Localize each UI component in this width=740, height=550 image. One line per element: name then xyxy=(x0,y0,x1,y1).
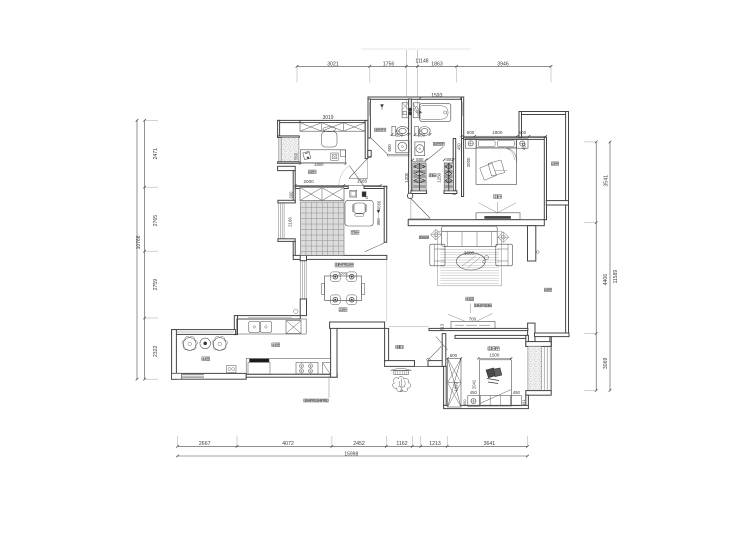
svg-text:450: 450 xyxy=(462,399,467,406)
svg-text:10766: 10766 xyxy=(136,235,142,249)
svg-text:1756: 1756 xyxy=(383,62,395,68)
svg-text:1600: 1600 xyxy=(314,162,324,167)
svg-text:2000: 2000 xyxy=(466,157,471,167)
svg-text:300: 300 xyxy=(376,218,381,226)
svg-text:450: 450 xyxy=(470,390,478,395)
svg-text:1162: 1162 xyxy=(396,441,407,447)
svg-text:550: 550 xyxy=(396,132,404,137)
svg-text:3019: 3019 xyxy=(322,115,333,121)
svg-text:1593: 1593 xyxy=(431,93,442,99)
svg-text:500: 500 xyxy=(418,132,426,137)
svg-text:2166: 2166 xyxy=(288,217,293,227)
svg-text:450: 450 xyxy=(513,390,521,395)
svg-text:4072: 4072 xyxy=(282,441,294,447)
svg-text:4566: 4566 xyxy=(376,200,381,210)
svg-text:3069: 3069 xyxy=(603,358,609,370)
svg-text:2041: 2041 xyxy=(472,379,477,389)
svg-text:450: 450 xyxy=(446,157,454,162)
svg-text:1863: 1863 xyxy=(431,62,443,68)
svg-text:2322: 2322 xyxy=(153,346,159,358)
svg-text:2667: 2667 xyxy=(199,441,211,447)
svg-text:11589: 11589 xyxy=(613,270,619,284)
svg-text:2452: 2452 xyxy=(353,441,365,447)
svg-text:3641: 3641 xyxy=(484,441,496,447)
svg-text:3946: 3946 xyxy=(497,62,509,68)
svg-text:500: 500 xyxy=(518,130,526,135)
svg-text:450: 450 xyxy=(456,142,461,150)
svg-text:3680: 3680 xyxy=(464,251,475,256)
svg-text:3021: 3021 xyxy=(327,62,339,68)
svg-text:2471: 2471 xyxy=(153,148,159,160)
svg-text:1213: 1213 xyxy=(429,441,441,447)
svg-text:1585: 1585 xyxy=(357,178,368,183)
svg-text:4406: 4406 xyxy=(603,274,609,286)
svg-text:3541: 3541 xyxy=(604,175,610,187)
svg-text:600: 600 xyxy=(387,144,392,152)
svg-text:700: 700 xyxy=(469,317,477,322)
svg-text:1999: 1999 xyxy=(454,381,459,391)
svg-text:1500: 1500 xyxy=(490,352,500,357)
svg-text:11148: 11148 xyxy=(415,59,428,65)
svg-text:2000: 2000 xyxy=(303,179,314,184)
svg-text:1800: 1800 xyxy=(492,130,503,135)
svg-text:1500: 1500 xyxy=(338,272,346,276)
svg-text:500: 500 xyxy=(467,130,475,135)
svg-text:313: 313 xyxy=(440,323,445,331)
svg-text:1200: 1200 xyxy=(404,172,409,182)
svg-text:15998: 15998 xyxy=(344,451,358,457)
svg-text:2765: 2765 xyxy=(153,215,159,227)
svg-text:550: 550 xyxy=(293,152,298,160)
svg-text:1250: 1250 xyxy=(437,172,442,182)
svg-text:451: 451 xyxy=(521,399,526,406)
svg-text:2759: 2759 xyxy=(153,279,159,291)
svg-text:600: 600 xyxy=(289,191,294,199)
svg-text:550: 550 xyxy=(416,157,424,162)
svg-text:450: 450 xyxy=(521,142,526,150)
svg-text:600: 600 xyxy=(450,353,458,358)
